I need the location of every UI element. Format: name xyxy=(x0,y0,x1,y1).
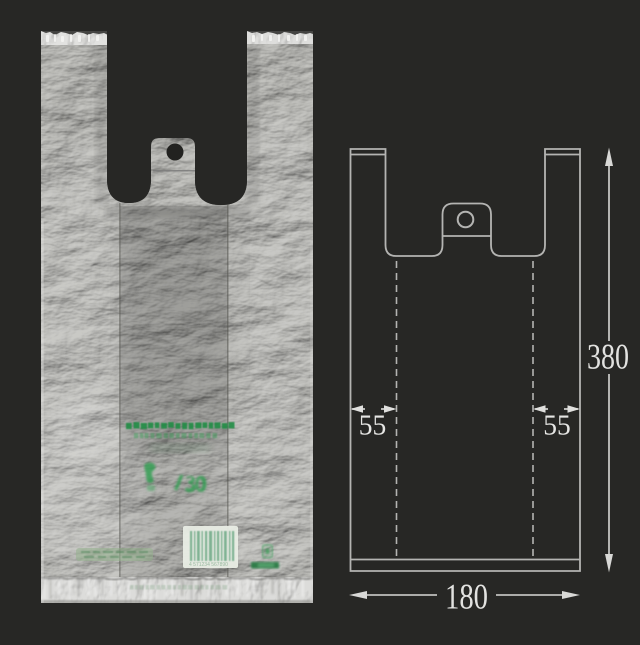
svg-text:180: 180 xyxy=(445,577,488,617)
svg-text:380: 380 xyxy=(587,337,629,377)
svg-text:4 571234 567890: 4 571234 567890 xyxy=(189,562,228,568)
svg-text:55: 55 xyxy=(543,410,571,442)
svg-text:55: 55 xyxy=(359,410,387,442)
